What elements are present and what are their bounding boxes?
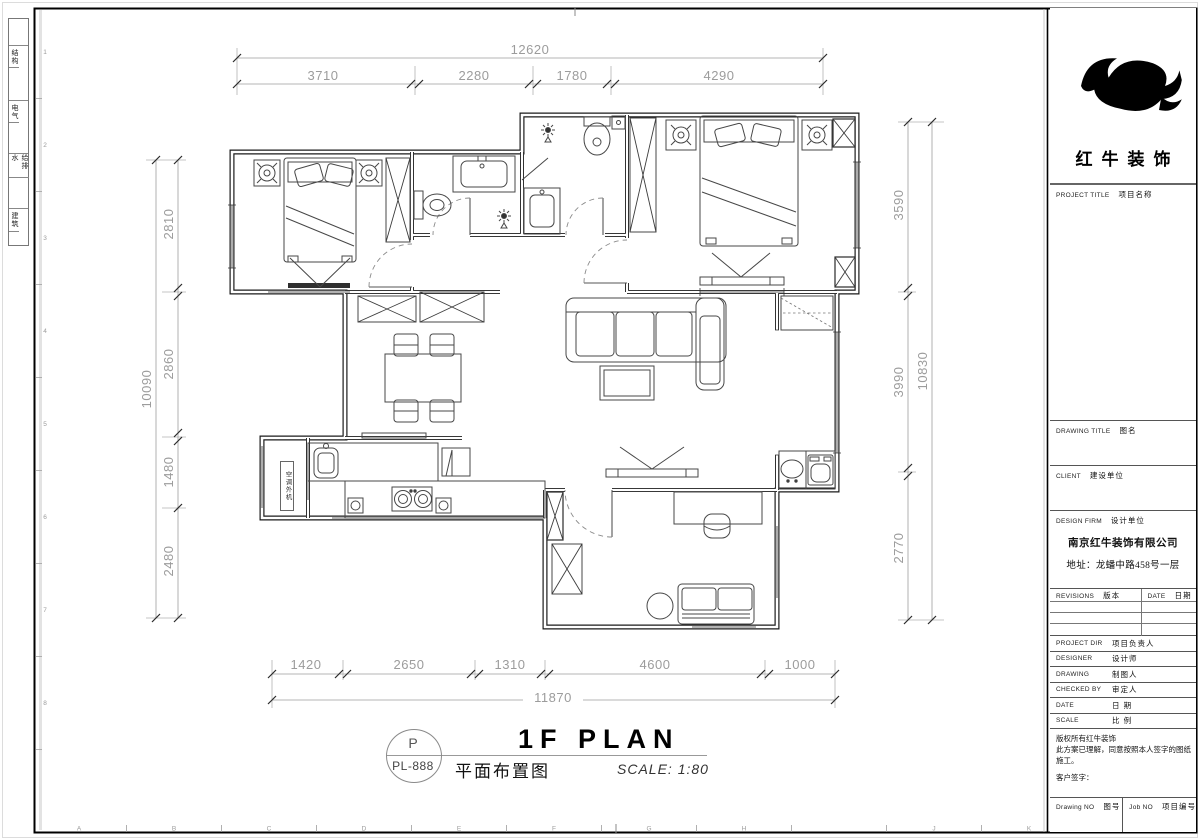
dim-left-seg: 1480 bbox=[161, 457, 176, 488]
kitchen bbox=[308, 433, 545, 518]
laundry-sink bbox=[781, 460, 803, 478]
grid-letter: F bbox=[552, 826, 556, 833]
ac-outdoor-unit-label: 空调外机 bbox=[281, 471, 293, 501]
drawing-title-label-en: DRAWING TITLE bbox=[1056, 428, 1110, 435]
bedroom-1 bbox=[254, 158, 410, 288]
grid-number: 5 bbox=[43, 421, 47, 428]
bath2-door bbox=[566, 198, 603, 235]
row-designer: DESIGNER 设计师 bbox=[1050, 651, 1196, 667]
design-firm-label-cn: 设计单位 bbox=[1111, 515, 1145, 526]
drawing-no-label-en: Drawing NO bbox=[1056, 804, 1094, 811]
dim-left: 10090 2810 2860 1480 2480 bbox=[139, 156, 186, 622]
grid-number: 2 bbox=[43, 142, 47, 149]
client-section: CLIENT 建设单位 bbox=[1050, 465, 1196, 510]
toilet bbox=[584, 117, 610, 126]
dim-top: 12620 3710 2280 1780 4290 bbox=[233, 42, 827, 95]
revision-row-empty bbox=[1141, 624, 1196, 636]
grid-letter: A bbox=[77, 826, 82, 833]
client-label-en: CLIENT bbox=[1056, 473, 1081, 480]
project-title-label-en: PROJECT TITLE bbox=[1056, 192, 1110, 199]
fridge bbox=[442, 448, 470, 476]
dim-left-seg: 2480 bbox=[161, 546, 176, 577]
discipline-strip: 结构 电气 给排水 建筑 bbox=[8, 18, 29, 246]
grid-letter: E bbox=[457, 826, 462, 833]
revision-row-empty bbox=[1050, 624, 1141, 636]
bull-logo-icon bbox=[1063, 36, 1183, 136]
row-checked-by: CHECKED BY 审定人 bbox=[1050, 682, 1196, 698]
dim-right-seg: 3590 bbox=[891, 190, 906, 221]
notice-line-2: 此方案已理解，同意按照本人签字的图纸施工。 bbox=[1056, 745, 1191, 767]
grid-number: 4 bbox=[43, 328, 47, 335]
counter bbox=[308, 443, 438, 481]
row-label-cn: 项目负责人 bbox=[1112, 638, 1155, 649]
study-door bbox=[565, 490, 612, 537]
dim-bottom-seg: 1000 bbox=[785, 657, 816, 672]
design-firm-label-en: DESIGN FIRM bbox=[1056, 518, 1102, 525]
copyright-notice: 版权所有红牛装饰 此方案已理解，同意按照本人签字的图纸施工。 客户签字： bbox=[1050, 728, 1196, 797]
row-project-dir: PROJECT DIR 项目负责人 bbox=[1050, 635, 1196, 651]
drawing-title-en: 1F PLAN bbox=[518, 724, 680, 755]
grid-letter: H bbox=[742, 826, 747, 833]
revisions-label-en: REVISIONS bbox=[1056, 593, 1094, 600]
drawing-sheet: A B C D E F G H J K 1 2 3 4 5 6 7 8 bbox=[0, 0, 1200, 840]
dim-top-seg: 1780 bbox=[557, 68, 588, 83]
project-title-label-cn: 项目名称 bbox=[1119, 189, 1153, 200]
row-label-en: DESIGNER bbox=[1056, 655, 1102, 662]
shower-head-icon bbox=[541, 123, 555, 142]
row-label-cn: 设计师 bbox=[1112, 653, 1138, 664]
side-table bbox=[647, 593, 673, 619]
revisions-label-cn: 版本 bbox=[1103, 590, 1120, 601]
dim-bottom-overall: 11870 bbox=[534, 690, 572, 705]
row-label-cn: 审定人 bbox=[1112, 684, 1138, 695]
hall-cabinets bbox=[358, 292, 484, 322]
title-block: 红牛装饰 PROJECT TITLE 项目名称 DRAWING TITLE 图名… bbox=[1050, 8, 1196, 832]
grid-letter: K bbox=[1027, 826, 1032, 833]
revisions-table: REVISIONS 版本 DATE 日期 bbox=[1050, 588, 1196, 635]
discipline-label: 给排水 bbox=[9, 154, 29, 178]
dim-bottom-seg: 1310 bbox=[495, 657, 526, 672]
date-label-cn: 日期 bbox=[1175, 590, 1192, 601]
grid-letter: D bbox=[362, 826, 367, 833]
dim-right-overall: 10830 bbox=[915, 352, 930, 391]
doors bbox=[369, 198, 627, 537]
grid-letter: G bbox=[646, 826, 651, 833]
revision-row-empty bbox=[1050, 613, 1141, 624]
row-date: DATE 日 期 bbox=[1050, 697, 1196, 713]
company-address: 地址：龙蟠中路458号一层 bbox=[1056, 557, 1190, 571]
counter bbox=[345, 481, 545, 518]
grid-letters: A B C D E F G H J K bbox=[77, 825, 1032, 833]
balcony bbox=[779, 296, 835, 489]
grid-letter: C bbox=[267, 826, 272, 833]
drawing-title-cn: 平面布置图 bbox=[455, 757, 550, 782]
row-label-en: DRAWING bbox=[1056, 671, 1102, 678]
tv-cabinet bbox=[700, 277, 784, 285]
company-name: 南京红牛装饰有限公司 bbox=[1056, 535, 1190, 550]
dim-left-overall: 10090 bbox=[139, 370, 154, 409]
dim-right-seg: 3990 bbox=[891, 367, 906, 398]
revision-row-empty bbox=[1050, 602, 1141, 613]
job-no-label-cn: 项目编号 bbox=[1162, 801, 1196, 812]
discipline-label: 结构 bbox=[9, 46, 19, 68]
dining-table bbox=[385, 354, 461, 402]
grid-letter: B bbox=[172, 826, 176, 833]
job-no-cell: Job NO 项目编号 bbox=[1122, 798, 1196, 832]
chair bbox=[704, 514, 730, 538]
row-label-en: SCALE bbox=[1056, 717, 1102, 724]
date-label-en: DATE bbox=[1148, 593, 1166, 600]
grid-number: 6 bbox=[43, 514, 47, 521]
bath1-door bbox=[433, 198, 470, 235]
dim-left-seg: 2860 bbox=[161, 349, 176, 380]
bath-1 bbox=[414, 156, 515, 228]
dim-right-seg: 2770 bbox=[891, 533, 906, 564]
living-room bbox=[566, 298, 726, 477]
drawing-number-row: Drawing NO 图号 Job NO 项目编号 bbox=[1050, 797, 1196, 832]
discipline-label: 建筑 bbox=[9, 209, 19, 232]
drawing-scale: SCALE: 1:80 bbox=[617, 761, 709, 777]
master-bedroom bbox=[630, 116, 855, 287]
row-label-cn: 日 期 bbox=[1112, 700, 1132, 711]
dim-bottom: 1420 2650 1310 4600 1000 11870 bbox=[268, 657, 839, 708]
row-label-en: DATE bbox=[1056, 702, 1102, 709]
notice-line-1: 版权所有红牛装饰 bbox=[1056, 734, 1191, 745]
bath-2 bbox=[522, 116, 625, 234]
washing-machine bbox=[808, 455, 833, 485]
row-label-en: PROJECT DIR bbox=[1056, 640, 1102, 647]
revision-row-empty bbox=[1141, 602, 1196, 613]
grid-number: 8 bbox=[43, 700, 47, 707]
master-door bbox=[584, 240, 627, 283]
sofa bbox=[566, 298, 726, 362]
row-label-en: CHECKED BY bbox=[1056, 686, 1102, 693]
shower-head-icon bbox=[497, 209, 511, 228]
project-title-section: PROJECT TITLE 项目名称 bbox=[1050, 185, 1196, 420]
study-room bbox=[547, 492, 762, 624]
grid-number: 1 bbox=[43, 49, 47, 56]
coffee-table bbox=[600, 366, 654, 400]
grid-number: 7 bbox=[43, 607, 47, 614]
brand-name: 红牛装饰 bbox=[1050, 145, 1196, 170]
drawing-no-label-cn: 图号 bbox=[1103, 801, 1120, 812]
dim-bottom-seg: 4600 bbox=[640, 657, 671, 672]
job-no-label-en: Job NO bbox=[1129, 804, 1153, 811]
signature-label: 客户签字： bbox=[1056, 773, 1191, 784]
toilet bbox=[414, 191, 423, 219]
row-label-cn: 制图人 bbox=[1112, 669, 1138, 680]
bedroom1-door bbox=[369, 244, 412, 287]
dim-bottom-seg: 2650 bbox=[394, 657, 425, 672]
dim-bottom-seg: 1420 bbox=[291, 657, 322, 672]
dim-top-seg: 4290 bbox=[704, 68, 735, 83]
design-firm-section: DESIGN FIRM 设计单位 南京红牛装饰有限公司 地址：龙蟠中路458号一… bbox=[1050, 510, 1196, 588]
sheet-frame bbox=[3, 3, 1198, 838]
walls bbox=[232, 115, 857, 627]
dining-area bbox=[385, 334, 461, 422]
row-scale: SCALE 比 例 bbox=[1050, 713, 1196, 729]
drawing-title-section: DRAWING TITLE 图名 bbox=[1050, 420, 1196, 465]
tv-cabinet bbox=[606, 469, 698, 477]
grid-number: 3 bbox=[43, 235, 47, 242]
drawing-tag-number: PL-888 bbox=[386, 759, 440, 773]
floor-plan-svg: A B C D E F G H J K 1 2 3 4 5 6 7 8 bbox=[0, 0, 1200, 840]
drawing-tag-letter: P bbox=[386, 735, 440, 751]
drawing-title-label-cn: 图名 bbox=[1119, 425, 1136, 436]
client-label-cn: 建设单位 bbox=[1090, 470, 1124, 481]
discipline-label: 电气 bbox=[9, 101, 19, 123]
dim-right: 3590 3990 2770 10830 bbox=[891, 118, 944, 624]
revision-row-empty bbox=[1141, 613, 1196, 624]
row-label-cn: 比 例 bbox=[1112, 715, 1132, 726]
dim-top-seg: 2280 bbox=[459, 68, 490, 83]
dim-top-seg: 3710 bbox=[308, 68, 339, 83]
grid-letter: J bbox=[932, 826, 935, 833]
dim-top-overall: 12620 bbox=[511, 42, 550, 57]
desk bbox=[674, 492, 762, 524]
grid-refs: A B C D E F G H J K 1 2 3 4 5 6 7 8 bbox=[36, 49, 1032, 833]
bed bbox=[700, 116, 798, 246]
ac-outdoor-unit: 空调外机 bbox=[280, 461, 294, 511]
company-logo-area: 红牛装饰 bbox=[1050, 8, 1196, 185]
row-drawing: DRAWING 制图人 bbox=[1050, 666, 1196, 682]
drawing-no-cell: Drawing NO 图号 bbox=[1050, 798, 1122, 832]
dim-left-seg: 2810 bbox=[161, 209, 176, 240]
